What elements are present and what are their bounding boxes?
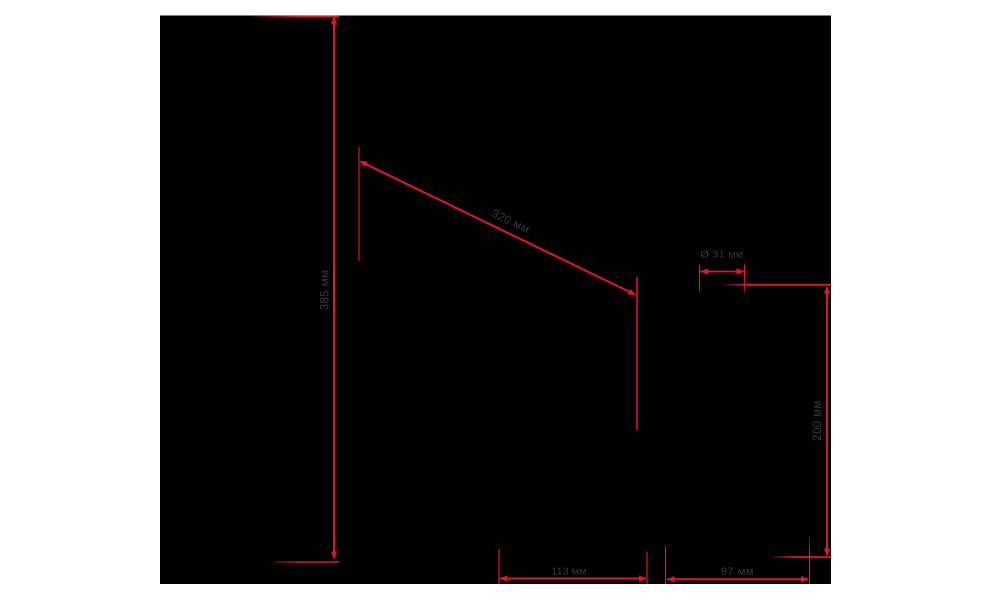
svg-text:385 мм: 385 мм — [320, 270, 332, 311]
svg-text:113 мм: 113 мм — [552, 566, 587, 578]
svg-text:200 мм: 200 мм — [812, 400, 824, 441]
svg-text:97 мм: 97 мм — [721, 566, 754, 578]
svg-text:Ø 31 мм: Ø 31 мм — [701, 249, 744, 261]
